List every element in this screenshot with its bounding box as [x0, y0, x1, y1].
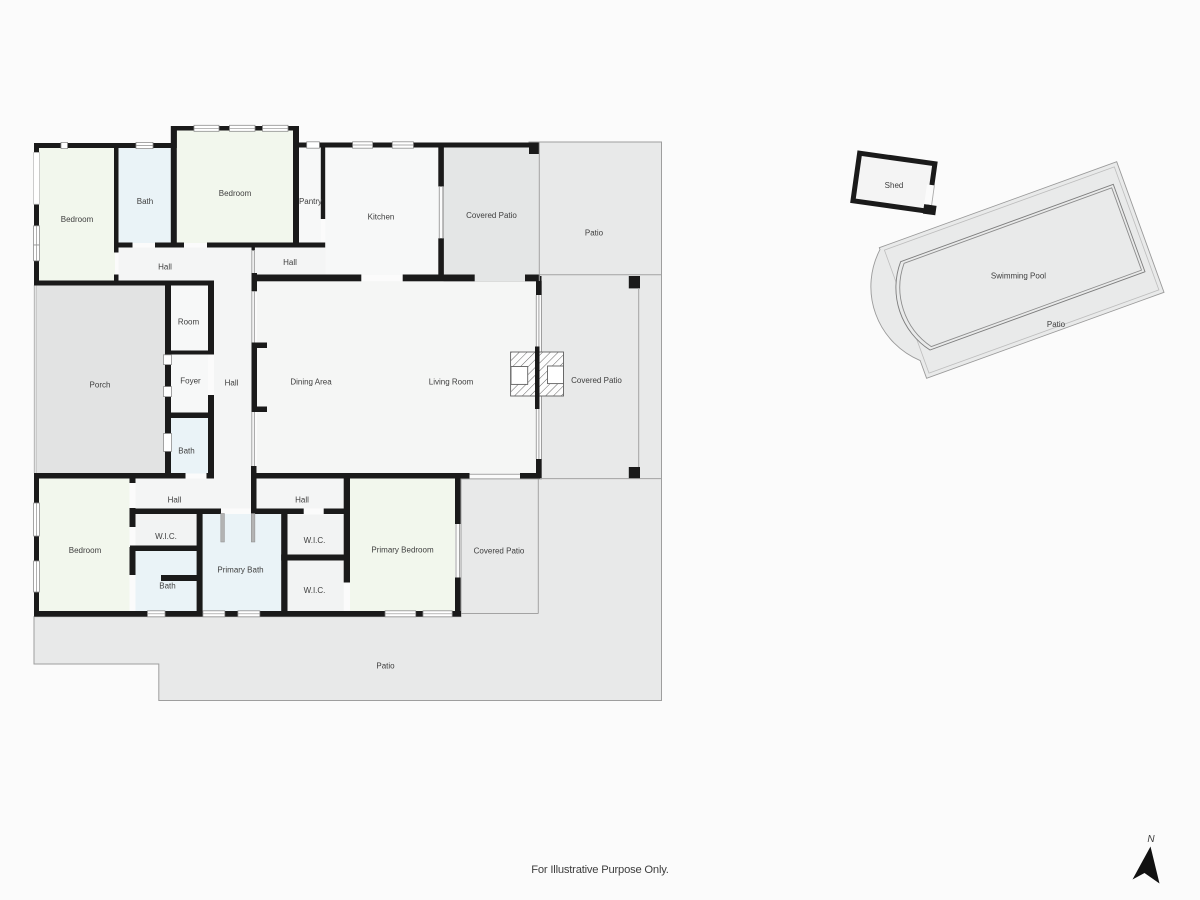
svg-text:Porch: Porch — [90, 380, 111, 389]
svg-text:Living Room: Living Room — [429, 377, 474, 386]
svg-text:Bedroom: Bedroom — [219, 189, 252, 198]
svg-text:Bath: Bath — [159, 581, 175, 590]
svg-text:Bedroom: Bedroom — [69, 546, 102, 555]
svg-text:Hall: Hall — [225, 378, 239, 387]
svg-text:Bedroom: Bedroom — [61, 215, 94, 224]
svg-text:Dining Area: Dining Area — [290, 377, 332, 386]
svg-text:Hall: Hall — [168, 495, 182, 504]
svg-text:For Illustrative Purpose Only.: For Illustrative Purpose Only. — [531, 864, 669, 876]
svg-text:W.I.C.: W.I.C. — [304, 586, 326, 595]
svg-text:Covered Patio: Covered Patio — [474, 546, 525, 555]
svg-text:Kitchen: Kitchen — [368, 212, 395, 221]
svg-text:Room: Room — [178, 317, 200, 326]
svg-text:Foyer: Foyer — [180, 376, 201, 385]
svg-text:Patio: Patio — [585, 228, 604, 237]
svg-text:Hall: Hall — [158, 262, 172, 271]
svg-text:Covered Patio: Covered Patio — [571, 376, 622, 385]
svg-text:N: N — [1147, 834, 1155, 845]
svg-text:Bath: Bath — [178, 446, 194, 455]
svg-text:W.I.C.: W.I.C. — [304, 536, 326, 545]
svg-text:Hall: Hall — [283, 258, 297, 267]
svg-text:W.I.C.: W.I.C. — [155, 532, 177, 541]
svg-text:Primary Bedroom: Primary Bedroom — [371, 545, 434, 554]
svg-text:Patio: Patio — [1047, 320, 1066, 329]
svg-text:Hall: Hall — [295, 495, 309, 504]
svg-text:Swimming Pool: Swimming Pool — [991, 271, 1046, 280]
svg-text:Pantry: Pantry — [299, 197, 322, 206]
svg-text:Bath: Bath — [137, 197, 153, 206]
svg-text:Shed: Shed — [885, 181, 904, 190]
svg-text:Patio: Patio — [376, 661, 395, 670]
svg-text:Primary Bath: Primary Bath — [217, 565, 263, 574]
svg-text:Covered Patio: Covered Patio — [466, 211, 517, 220]
